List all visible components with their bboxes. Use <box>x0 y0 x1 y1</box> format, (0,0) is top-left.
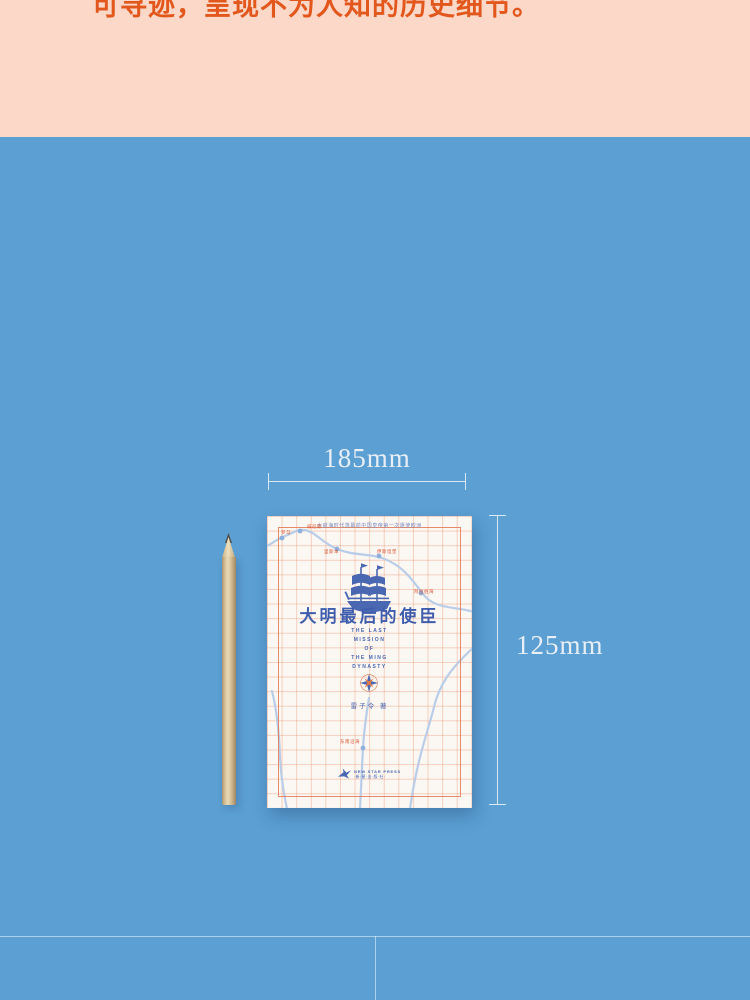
subtitle-line: OF <box>267 645 472 654</box>
place-label: 东南沿海 <box>340 739 360 745</box>
tick-bottom <box>489 804 506 805</box>
cover-subtitle: THE LAST MISSION OF THE MING DYNASTY <box>267 627 472 672</box>
height-dimension-label: 125mm <box>516 630 604 661</box>
spec-page-count: 328 页 <box>375 937 750 1000</box>
place-label: 阿拉伯海 <box>414 589 434 595</box>
subtitle-line: THE MING <box>267 654 472 663</box>
spec-binding: 纸面平装 <box>0 937 375 1000</box>
tick-left <box>268 473 269 490</box>
book-cover: 大航海时代落幕前中国皇帝第一次遣使欧洲 罗马 威尼斯 里斯本 伊斯坦堡 阿拉伯海… <box>267 516 472 808</box>
width-dimension-label: 185mm <box>267 443 467 474</box>
cover-tagline: 大航海时代落幕前中国皇帝第一次遣使欧洲 <box>267 522 472 529</box>
cover-author: 雷子令 著 <box>267 700 472 710</box>
place-label: 伊斯坦堡 <box>377 549 397 555</box>
cover-title: 大明最后的使臣 <box>267 602 472 627</box>
product-detail-page: 可寻迹，呈现不为人知的历史细节。 185mm <box>0 0 750 1000</box>
swallow-icon <box>338 768 351 780</box>
width-dimension-line <box>268 481 466 482</box>
compass-rose-icon <box>359 673 379 693</box>
top-banner: 可寻迹，呈现不为人知的历史细节。 <box>0 0 750 137</box>
publisher-logo: NEW STAR PRESS ·新·星·出·版·社· <box>267 768 472 780</box>
subtitle-line: MISSION <box>267 636 472 645</box>
place-label: 罗马 <box>281 530 291 536</box>
showcase-panel: 185mm <box>0 137 750 1000</box>
publisher-text: NEW STAR PRESS ·新·星·出·版·社· <box>354 769 401 779</box>
publisher-name-cn: ·新·星·出·版·社· <box>354 774 401 779</box>
pencil-body <box>222 557 236 805</box>
height-dimension-line <box>497 515 498 805</box>
subtitle-line: DYNASTY <box>267 663 472 672</box>
tick-top <box>489 515 506 516</box>
place-label: 里斯本 <box>324 549 339 555</box>
banner-text: 可寻迹，呈现不为人知的历史细节。 <box>92 0 540 23</box>
tick-right <box>465 473 466 490</box>
place-label: 威尼斯 <box>307 524 322 530</box>
pencil-wood-cone <box>222 537 236 559</box>
subtitle-line: THE LAST <box>267 627 472 636</box>
